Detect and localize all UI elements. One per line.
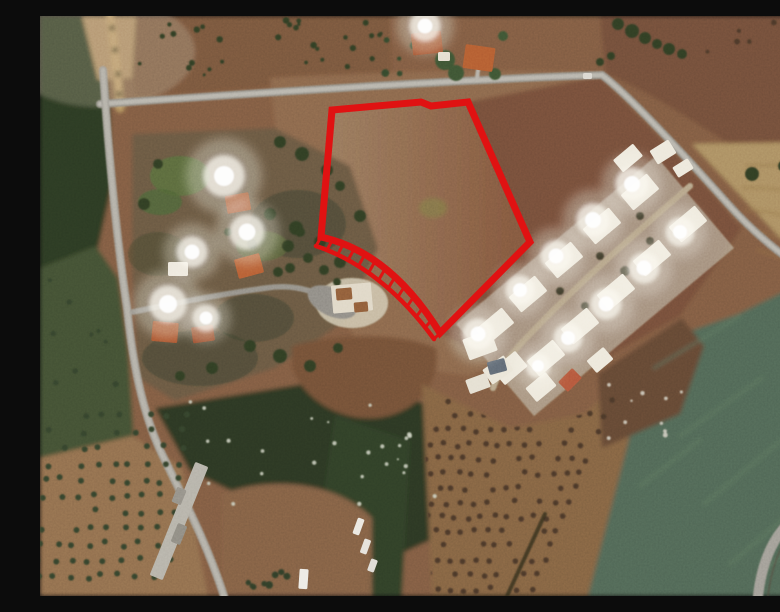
scene-layers <box>40 16 780 596</box>
satellite-image-canvas <box>40 16 780 596</box>
satellite-photo <box>40 16 780 596</box>
